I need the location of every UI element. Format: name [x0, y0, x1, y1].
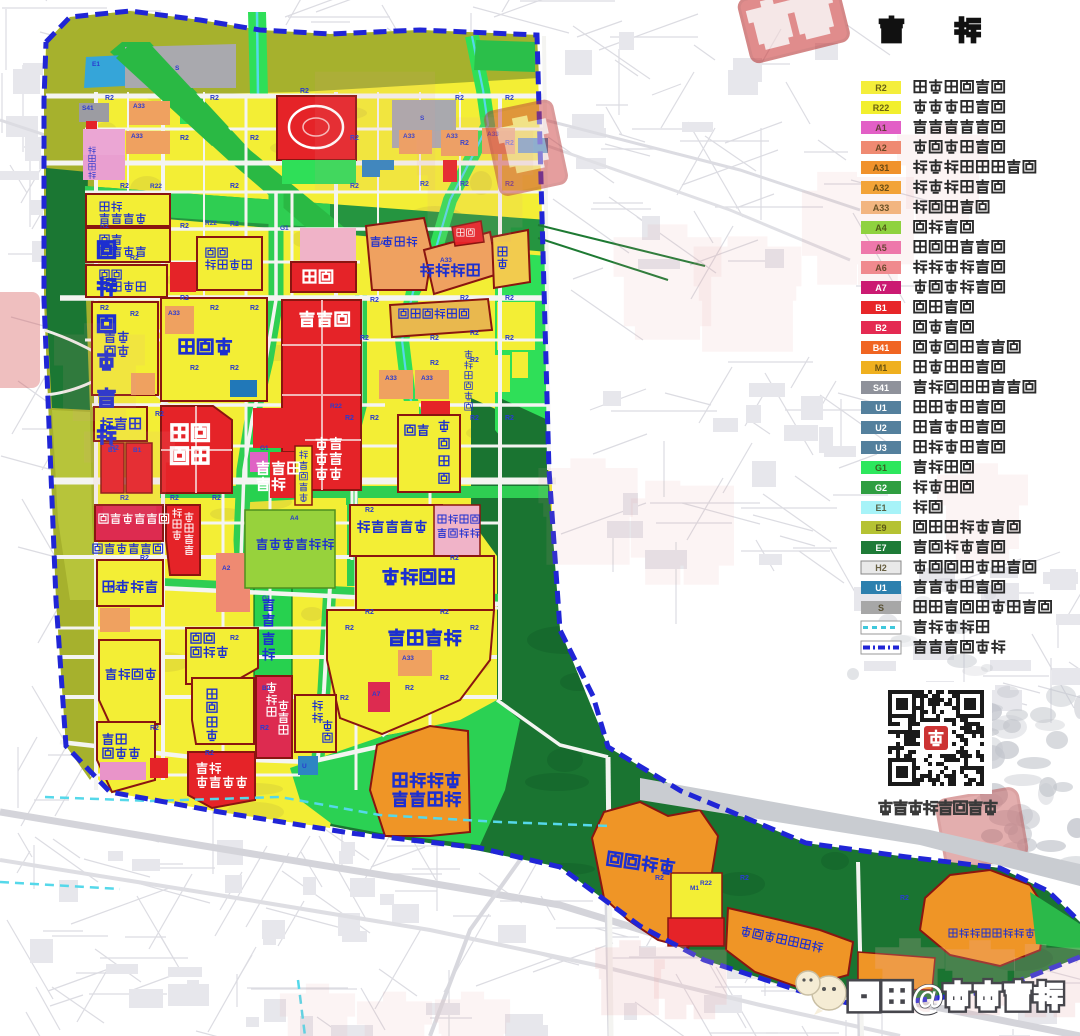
- svg-text:R2: R2: [460, 295, 469, 302]
- svg-text:R2: R2: [740, 875, 749, 882]
- svg-text:A4: A4: [875, 223, 887, 233]
- svg-text:R2: R2: [105, 95, 114, 102]
- svg-text:R2: R2: [180, 295, 189, 302]
- svg-text:A6: A6: [875, 263, 887, 273]
- svg-text:R2: R2: [505, 415, 514, 422]
- svg-text:R2: R2: [110, 585, 119, 592]
- svg-text:M1: M1: [690, 885, 699, 892]
- svg-text:R2: R2: [345, 415, 354, 422]
- svg-text:S: S: [175, 65, 180, 72]
- svg-text:R2: R2: [150, 725, 159, 732]
- svg-text:R2: R2: [440, 675, 449, 682]
- svg-text:R2: R2: [230, 365, 239, 372]
- svg-text:R2: R2: [230, 635, 239, 642]
- svg-text:G1: G1: [280, 225, 289, 232]
- svg-text:R2: R2: [260, 725, 269, 732]
- svg-text:R22: R22: [873, 103, 890, 113]
- svg-text:R22: R22: [205, 220, 217, 227]
- svg-text:A7: A7: [875, 283, 887, 293]
- svg-text:R2: R2: [100, 305, 109, 312]
- svg-text:R2: R2: [370, 297, 379, 304]
- svg-text:A33: A33: [133, 103, 145, 110]
- svg-text:R2: R2: [505, 335, 514, 342]
- svg-text:A4: A4: [290, 515, 299, 522]
- svg-text:R2: R2: [455, 95, 464, 102]
- svg-text:A31: A31: [873, 163, 890, 173]
- svg-text:U3: U3: [875, 443, 887, 453]
- svg-text:R2: R2: [155, 411, 164, 418]
- svg-text:R2: R2: [365, 609, 374, 616]
- svg-text:R2: R2: [250, 135, 259, 142]
- svg-text:G1: G1: [260, 445, 269, 452]
- svg-text:S41: S41: [82, 105, 94, 112]
- svg-text:R2: R2: [450, 555, 459, 562]
- svg-text:B2: B2: [262, 685, 271, 692]
- svg-text:R2: R2: [505, 295, 514, 302]
- svg-text:R2: R2: [430, 360, 439, 367]
- svg-text:R2: R2: [140, 555, 149, 562]
- svg-text:R2: R2: [655, 875, 664, 882]
- svg-text:R2: R2: [250, 305, 259, 312]
- svg-text:R22: R22: [330, 403, 342, 410]
- svg-text:R2: R2: [470, 625, 479, 632]
- svg-text:A33: A33: [402, 655, 414, 662]
- svg-text:B2: B2: [875, 323, 887, 333]
- svg-text:G1: G1: [262, 595, 271, 602]
- svg-text:U: U: [302, 763, 307, 770]
- svg-text:B41: B41: [873, 343, 890, 353]
- svg-text:R22: R22: [150, 183, 162, 190]
- svg-text:R2: R2: [470, 330, 479, 337]
- svg-text:A5: A5: [875, 243, 887, 253]
- svg-text:A1: A1: [875, 123, 887, 133]
- svg-text:R2: R2: [100, 223, 109, 230]
- svg-text:R2: R2: [470, 357, 479, 364]
- svg-text:R2: R2: [210, 95, 219, 102]
- svg-text:R2: R2: [300, 88, 309, 95]
- svg-text:R2: R2: [190, 365, 199, 372]
- svg-text:A2: A2: [875, 143, 887, 153]
- svg-text:A33: A33: [421, 375, 433, 382]
- svg-text:R2: R2: [212, 495, 221, 502]
- svg-text:G1: G1: [875, 463, 887, 473]
- svg-text:A32: A32: [873, 183, 890, 193]
- svg-text:A33: A33: [385, 375, 397, 382]
- svg-text:R2: R2: [205, 750, 214, 757]
- svg-text:A33: A33: [440, 257, 452, 264]
- svg-text:R2: R2: [180, 135, 189, 142]
- svg-text:R2: R2: [430, 335, 439, 342]
- svg-text:R2: R2: [130, 255, 139, 262]
- svg-text:R2: R2: [340, 695, 349, 702]
- svg-text:R2: R2: [180, 223, 189, 230]
- svg-text:U2: U2: [875, 423, 887, 433]
- svg-text:A33: A33: [168, 310, 180, 317]
- svg-text:A33: A33: [131, 133, 143, 140]
- svg-text:A31: A31: [380, 240, 392, 247]
- svg-text:A7: A7: [372, 691, 381, 698]
- svg-text:H2: H2: [875, 563, 887, 573]
- svg-text:G2: G2: [875, 483, 887, 493]
- svg-text:R2: R2: [370, 415, 379, 422]
- svg-text:R22: R22: [700, 880, 712, 887]
- svg-text:M1: M1: [875, 363, 888, 373]
- svg-text:R2: R2: [230, 221, 239, 228]
- svg-text:R2: R2: [405, 685, 414, 692]
- svg-text:@: @: [911, 979, 944, 1017]
- svg-text:R2: R2: [345, 625, 354, 632]
- svg-text:E1: E1: [92, 61, 100, 68]
- svg-text:R2: R2: [900, 895, 909, 902]
- svg-text:E1: E1: [875, 503, 886, 513]
- svg-text:R2: R2: [875, 83, 887, 93]
- svg-text:R2: R2: [210, 305, 219, 312]
- svg-text:B1: B1: [875, 303, 887, 313]
- svg-text:R2: R2: [170, 495, 179, 502]
- svg-text:A33: A33: [873, 203, 890, 213]
- svg-text:E9: E9: [875, 523, 886, 533]
- svg-text:U1: U1: [875, 583, 887, 593]
- svg-text:R2: R2: [130, 311, 139, 318]
- svg-text:R2: R2: [440, 609, 449, 616]
- svg-text:U1: U1: [875, 403, 887, 413]
- svg-text:R2: R2: [120, 183, 129, 190]
- svg-text:S: S: [878, 603, 884, 613]
- svg-text:R2: R2: [230, 183, 239, 190]
- svg-text:R2: R2: [470, 415, 479, 422]
- svg-text:R2: R2: [365, 507, 374, 514]
- svg-text:S41: S41: [873, 383, 889, 393]
- svg-text:E7: E7: [875, 543, 886, 553]
- svg-text:A2: A2: [222, 565, 231, 572]
- svg-text:R2: R2: [505, 95, 514, 102]
- svg-text:R2: R2: [360, 335, 369, 342]
